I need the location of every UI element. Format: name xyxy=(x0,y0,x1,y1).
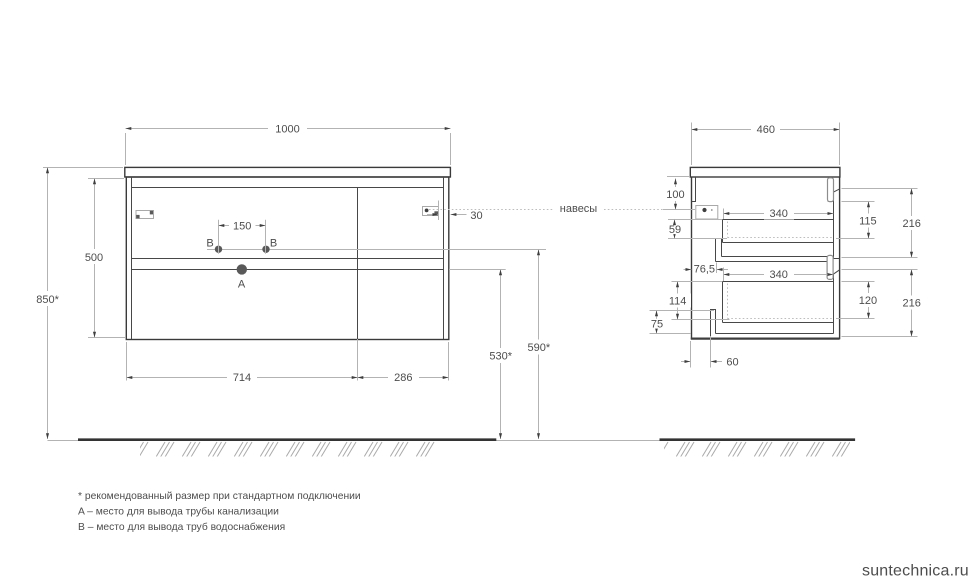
svg-text:навесы: навесы xyxy=(560,203,598,215)
svg-text:A – место для вывода трубы кан: A – место для вывода трубы канализации xyxy=(78,506,279,518)
svg-text:114: 114 xyxy=(669,296,687,308)
svg-text:850*: 850* xyxy=(36,294,59,306)
svg-text:B – место для вывода труб водо: B – место для вывода труб водоснабжения xyxy=(78,521,285,533)
svg-text:76,5: 76,5 xyxy=(694,264,715,276)
svg-text:suntechnica.ru: suntechnica.ru xyxy=(862,563,969,580)
svg-text:B: B xyxy=(206,237,213,249)
svg-text:115: 115 xyxy=(859,216,877,228)
svg-text:590*: 590* xyxy=(527,342,550,354)
svg-text:120: 120 xyxy=(859,295,877,307)
svg-text:30: 30 xyxy=(470,210,482,222)
svg-text:216: 216 xyxy=(903,298,921,310)
svg-text:60: 60 xyxy=(726,357,738,369)
svg-text:530*: 530* xyxy=(489,350,512,362)
svg-text:286: 286 xyxy=(394,372,412,384)
svg-text:59: 59 xyxy=(669,224,681,236)
svg-text:500: 500 xyxy=(85,252,103,264)
svg-text:216: 216 xyxy=(903,218,921,230)
svg-text:* рекомендованный размер при с: * рекомендованный размер при стандартном… xyxy=(78,491,361,502)
svg-text:714: 714 xyxy=(233,372,251,384)
svg-text:A: A xyxy=(238,278,246,290)
svg-text:340: 340 xyxy=(770,208,788,220)
svg-text:100: 100 xyxy=(666,189,684,201)
svg-text:75: 75 xyxy=(651,319,663,331)
svg-text:460: 460 xyxy=(757,124,775,136)
svg-text:340: 340 xyxy=(770,269,788,281)
svg-text:B: B xyxy=(270,237,277,249)
svg-text:150: 150 xyxy=(233,221,251,233)
svg-text:1000: 1000 xyxy=(275,123,299,135)
